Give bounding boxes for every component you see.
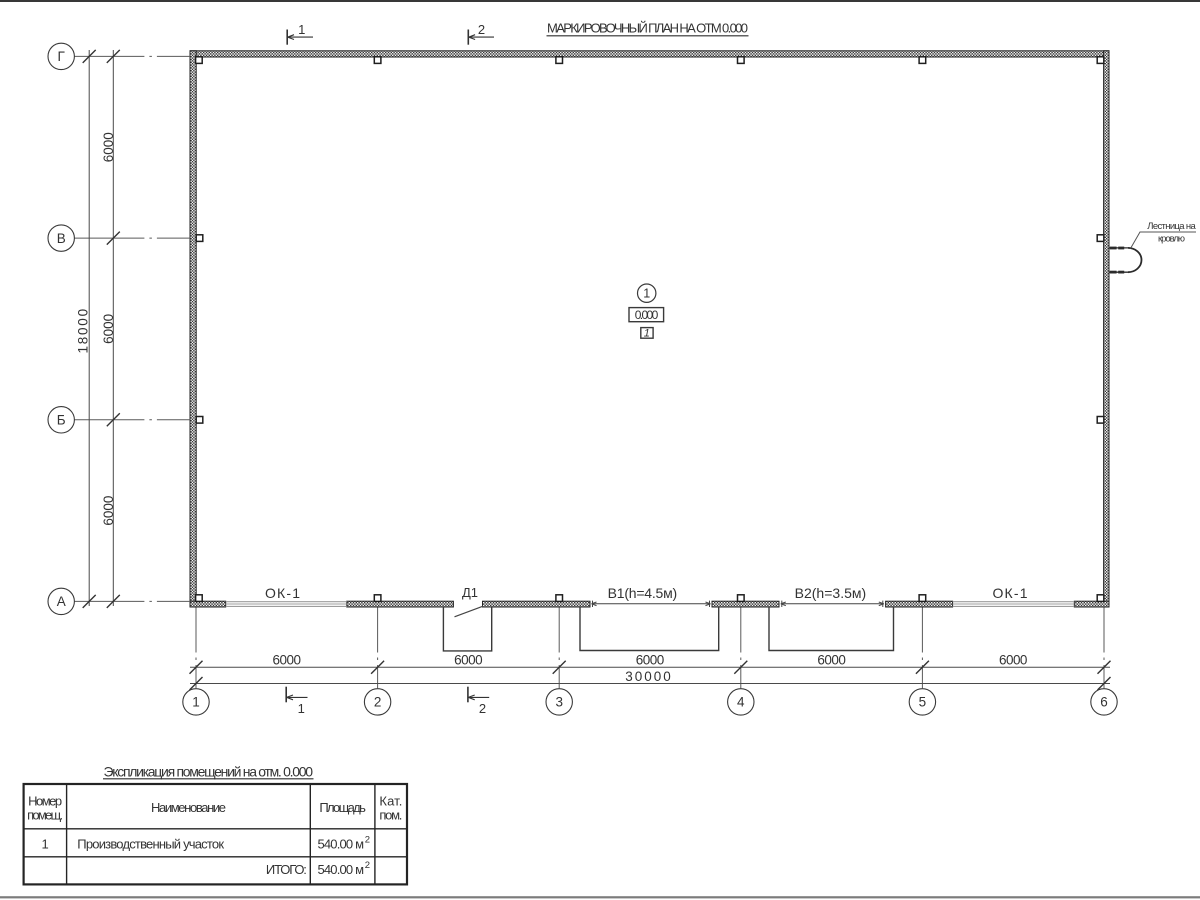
svg-text:4: 4 bbox=[737, 695, 745, 710]
svg-text:Б: Б bbox=[57, 413, 66, 428]
svg-text:540.00 м: 540.00 м bbox=[318, 862, 365, 877]
svg-text:Производственный участок: Производственный участок bbox=[77, 836, 224, 851]
svg-text:3: 3 bbox=[555, 695, 563, 710]
svg-text:пом.: пом. bbox=[379, 808, 402, 823]
svg-text:2: 2 bbox=[365, 860, 370, 871]
svg-text:6000: 6000 bbox=[101, 496, 116, 526]
svg-text:Д1: Д1 bbox=[462, 585, 478, 600]
svg-text:2: 2 bbox=[374, 695, 382, 710]
svg-text:А: А bbox=[57, 594, 66, 609]
svg-text:1: 1 bbox=[298, 22, 305, 37]
svg-text:Экспликация помещений на отм.: Экспликация помещений на отм. 0.000 bbox=[104, 764, 314, 780]
svg-text:Наименование: Наименование bbox=[151, 800, 226, 815]
svg-text:ИТОГО:: ИТОГО: bbox=[266, 862, 307, 877]
svg-text:В2(h=3.5м): В2(h=3.5м) bbox=[795, 585, 867, 601]
svg-text:1: 1 bbox=[41, 836, 48, 851]
svg-text:1: 1 bbox=[298, 701, 305, 716]
svg-text:ОК-1: ОК-1 bbox=[265, 585, 300, 601]
svg-text:6: 6 bbox=[1100, 695, 1108, 710]
svg-text:5: 5 bbox=[919, 695, 927, 710]
svg-text:6000: 6000 bbox=[101, 314, 116, 344]
svg-text:6000: 6000 bbox=[636, 653, 665, 668]
svg-text:2: 2 bbox=[478, 22, 485, 37]
svg-text:Площадь: Площадь bbox=[319, 800, 366, 815]
svg-text:Лестница на: Лестница на bbox=[1147, 221, 1196, 232]
svg-text:540.00 м: 540.00 м bbox=[318, 836, 365, 851]
svg-text:В: В bbox=[57, 231, 66, 246]
svg-text:Кат.: Кат. bbox=[379, 794, 402, 809]
svg-text:6000: 6000 bbox=[101, 132, 116, 162]
svg-text:1: 1 bbox=[192, 695, 200, 710]
svg-text:ОК-1: ОК-1 bbox=[993, 585, 1028, 601]
svg-text:2: 2 bbox=[479, 701, 486, 716]
svg-text:В1(h=4.5м): В1(h=4.5м) bbox=[608, 585, 678, 601]
svg-text:6000: 6000 bbox=[454, 653, 483, 668]
svg-text:1: 1 bbox=[644, 328, 650, 340]
svg-text:Г: Г bbox=[58, 49, 66, 64]
svg-text:6000: 6000 bbox=[999, 653, 1027, 668]
svg-text:6000: 6000 bbox=[273, 653, 302, 668]
svg-text:МАРКИРОВОЧНЫЙ ПЛАН НА ОТМ 0.00: МАРКИРОВОЧНЫЙ ПЛАН НА ОТМ 0.000 bbox=[547, 21, 748, 36]
svg-text:2: 2 bbox=[365, 835, 370, 846]
svg-text:1: 1 bbox=[643, 287, 650, 301]
svg-text:Номер: Номер bbox=[28, 794, 62, 809]
svg-text:6000: 6000 bbox=[817, 653, 846, 668]
svg-text:18000: 18000 bbox=[76, 309, 91, 354]
svg-text:0.000: 0.000 bbox=[635, 308, 659, 322]
svg-text:кровлю: кровлю bbox=[1158, 233, 1185, 244]
svg-text:помещ.: помещ. bbox=[27, 808, 63, 823]
svg-text:30000: 30000 bbox=[625, 669, 671, 684]
